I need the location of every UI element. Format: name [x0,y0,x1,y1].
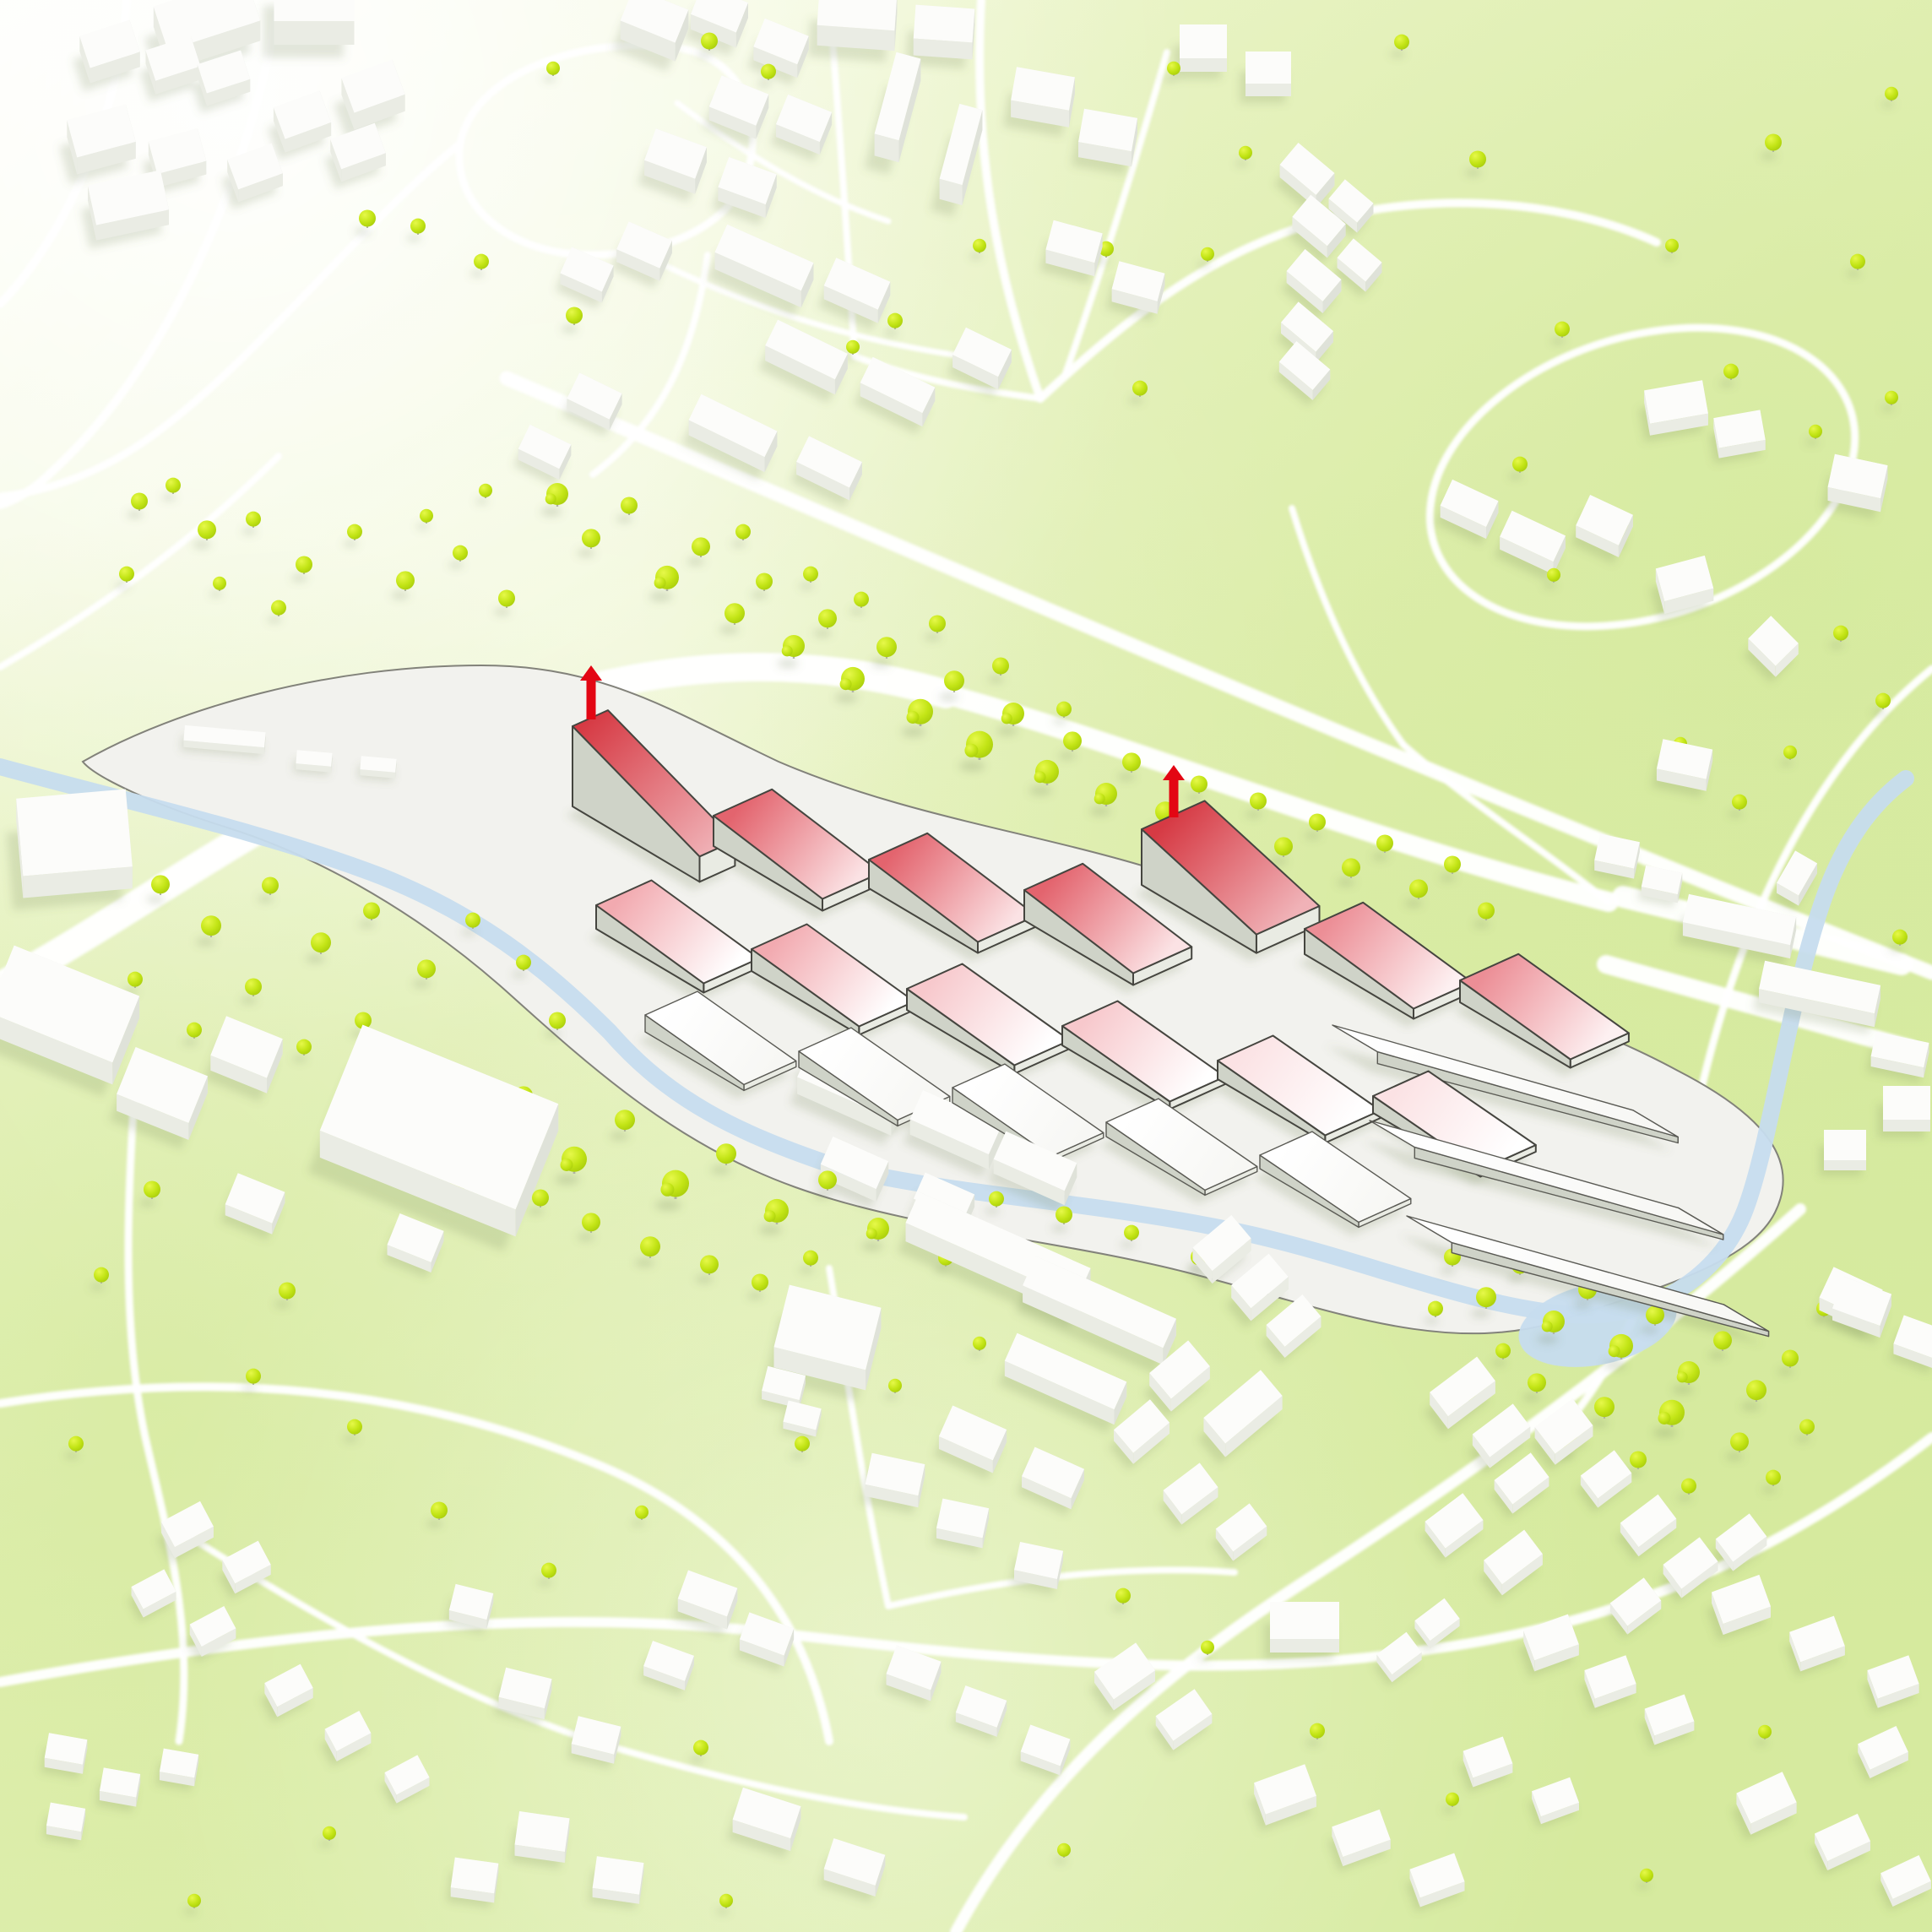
tree-shadow [1538,1335,1559,1343]
context-building [100,1767,140,1806]
context-building [1713,410,1765,458]
tree-shadow [1054,1858,1066,1863]
tree-shadow [1881,101,1894,106]
tree-shadow [1847,270,1861,276]
tree-shadow [1425,1317,1439,1323]
tree-shadow [242,528,257,534]
tree-shadow [1197,262,1210,267]
tree-shadow [814,630,832,638]
tree-shadow [635,1259,654,1267]
tree-shadow [538,1579,552,1585]
context-building [1883,1086,1930,1132]
tree-shadow [791,1452,806,1458]
tree-shadow [902,727,926,737]
tree-shadow [1440,1267,1456,1274]
tree-shadow [359,921,375,928]
tree-shadow [139,1200,155,1207]
tree-shadow [1662,253,1674,258]
tree-shadow [470,270,485,276]
tree-shadow [1129,397,1143,403]
tree-shadow [697,52,713,58]
tree-shadow [616,516,632,523]
tree-shadow [193,541,211,549]
tree-shadow [1604,1360,1626,1370]
tree-shadow [778,659,799,668]
tree-shadow [1755,1739,1767,1745]
tree-shadow [274,1301,290,1308]
tree-shadow [835,693,858,703]
tree-shadow [413,980,431,988]
context-building [515,1811,570,1863]
tree-shadow [1762,1486,1777,1492]
tree-shadow [1465,170,1481,176]
tree-shadow [1118,773,1136,781]
tree-shadow [1653,1428,1678,1438]
tree-shadow [90,1283,105,1289]
tree-shadow [969,1351,982,1356]
tree-shadow [1305,833,1321,839]
tree-shadow [1186,795,1202,801]
tree-shadow [162,494,176,500]
tree-shadow [268,616,282,622]
tree-shadow [1197,1655,1210,1660]
tree-shadow [1090,807,1111,816]
tree-shadow [1830,642,1844,648]
tree-shadow [545,1031,561,1038]
context-building [16,790,133,898]
context-building [593,1856,644,1903]
context-building [1078,109,1137,167]
tree-shadow [513,971,527,977]
tree-shadow [1306,1739,1321,1745]
context-building [160,1749,198,1787]
tree-shadow [690,1756,704,1762]
tree-shadow [935,1267,949,1273]
tree-shadow [184,1908,197,1913]
tree-shadow [711,1166,730,1175]
tree-shadow [449,562,464,567]
tree-shadow [1551,338,1566,344]
tree-shadow [884,329,898,335]
tree-shadow [1881,405,1894,410]
tree-shadow [258,896,274,903]
tree-shadow [426,1521,442,1528]
tree-shadow [1372,854,1388,860]
tree-shadow [209,591,222,596]
tree-shadow [1112,1604,1126,1610]
tree-shadow [183,1039,198,1045]
context-building [296,750,332,773]
tree-shadow [939,693,958,702]
tree-shadow [1544,583,1556,588]
tree-shadow [649,592,672,601]
context-building [274,0,355,45]
tree-shadow [116,583,130,589]
context-building [1824,1130,1866,1170]
tree-shadow [1440,875,1456,882]
tree-shadow [306,955,325,963]
tree-shadow [1338,879,1355,887]
context-building [360,756,396,779]
tree-shadow [871,659,891,668]
tree-shadow [1636,1883,1649,1888]
aerial-masterplan-map [0,0,1932,1932]
tree-shadow [1471,1310,1490,1318]
tree-shadow [1805,439,1818,444]
tree-shadow [355,229,371,236]
tree-shadow [1473,921,1490,928]
tree-shadow [416,524,429,529]
tree-shadow [1726,1453,1744,1461]
tree-shadow [1492,1359,1506,1365]
tree-shadow [862,1242,883,1251]
tree-shadow [1761,153,1777,160]
tree-shadow [610,1132,629,1141]
tree-shadow [1029,786,1052,795]
tree-shadow [1796,1435,1810,1441]
tree-shadow [925,634,941,641]
tree-shadow [1053,718,1067,724]
tree-shadow [1121,1241,1135,1247]
tree-shadow [1813,1317,1827,1323]
tree-shadow [1889,946,1903,952]
tree-shadow [1642,1327,1659,1334]
tree-shadow [196,938,215,947]
tree-shadow [1405,900,1423,908]
tree-shadow [1720,380,1734,386]
context-building [451,1858,499,1903]
tree-shadow [752,592,768,599]
tree-shadow [687,558,705,566]
tree-shadow [494,609,510,616]
tree-shadow [344,1435,358,1441]
tree-shadow [1245,811,1262,818]
context-building [1011,67,1075,128]
tree-shadow [1059,752,1077,760]
tree-shadow [800,1267,814,1273]
tree-shadow [241,997,257,1004]
tree-shadow [988,676,1004,683]
tree-shadow [1777,1369,1794,1376]
tree-shadow [528,1208,544,1215]
tree-shadow [969,253,982,258]
tree-shadow [1235,160,1248,166]
tree-shadow [242,1385,257,1391]
tree-shadow [407,235,421,241]
tree-shadow [392,592,410,600]
tree-shadow [814,1191,832,1199]
tree-shadow [344,540,358,546]
tree-shadow [127,512,143,518]
tree-shadow [850,608,865,614]
tree-shadow [732,540,746,546]
tree-shadow [1872,709,1886,715]
tree-shadow [655,1200,681,1211]
tree-shadow [462,929,476,935]
tree-shadow [1523,1394,1541,1402]
context-building [817,0,898,51]
tree-shadow [1709,1352,1727,1359]
context-building [1270,1602,1339,1653]
tree-shadow [578,550,595,557]
tree-shadow [1673,1386,1694,1394]
map-svg [0,0,1932,1932]
tree-shadow [556,1175,580,1185]
context-building [46,1803,85,1841]
tree-shadow [543,76,556,81]
tree-shadow [997,727,1018,735]
tree-shadow [65,1452,79,1458]
tree-shadow [1678,1495,1692,1501]
tree-shadow [1442,1807,1455,1812]
tree-shadow [985,1207,1000,1213]
context-building [45,1733,88,1774]
tree-shadow [1574,1301,1592,1309]
tree-shadow [1509,473,1523,479]
tree-shadow [885,1393,898,1398]
context-building [1245,52,1291,96]
tree-shadow [1780,760,1793,765]
context-building [1180,24,1227,72]
tree-shadow [293,1056,307,1061]
tree-shadow [319,1841,332,1846]
tree-shadow [1051,1225,1067,1232]
tree-shadow [562,326,578,333]
tree-shadow [632,1520,644,1525]
tree-shadow [959,761,985,772]
tree-shadow [291,575,307,582]
tree-shadow [578,1234,595,1241]
tree-shadow [1728,811,1743,817]
tree-shadow [747,1293,763,1300]
tree-shadow [719,626,739,634]
tree-shadow [757,80,772,86]
tree-shadow [800,583,814,589]
tree-shadow [147,896,165,904]
tree-shadow [696,1276,714,1283]
tree-shadow [475,498,488,503]
context-building [914,5,975,60]
tree-shadow [1391,51,1405,57]
tree-shadow [716,1908,729,1913]
tree-shadow [1741,1403,1761,1411]
tree-shadow [1164,76,1176,81]
tree-shadow [541,507,562,516]
tree-shadow [759,1225,782,1235]
